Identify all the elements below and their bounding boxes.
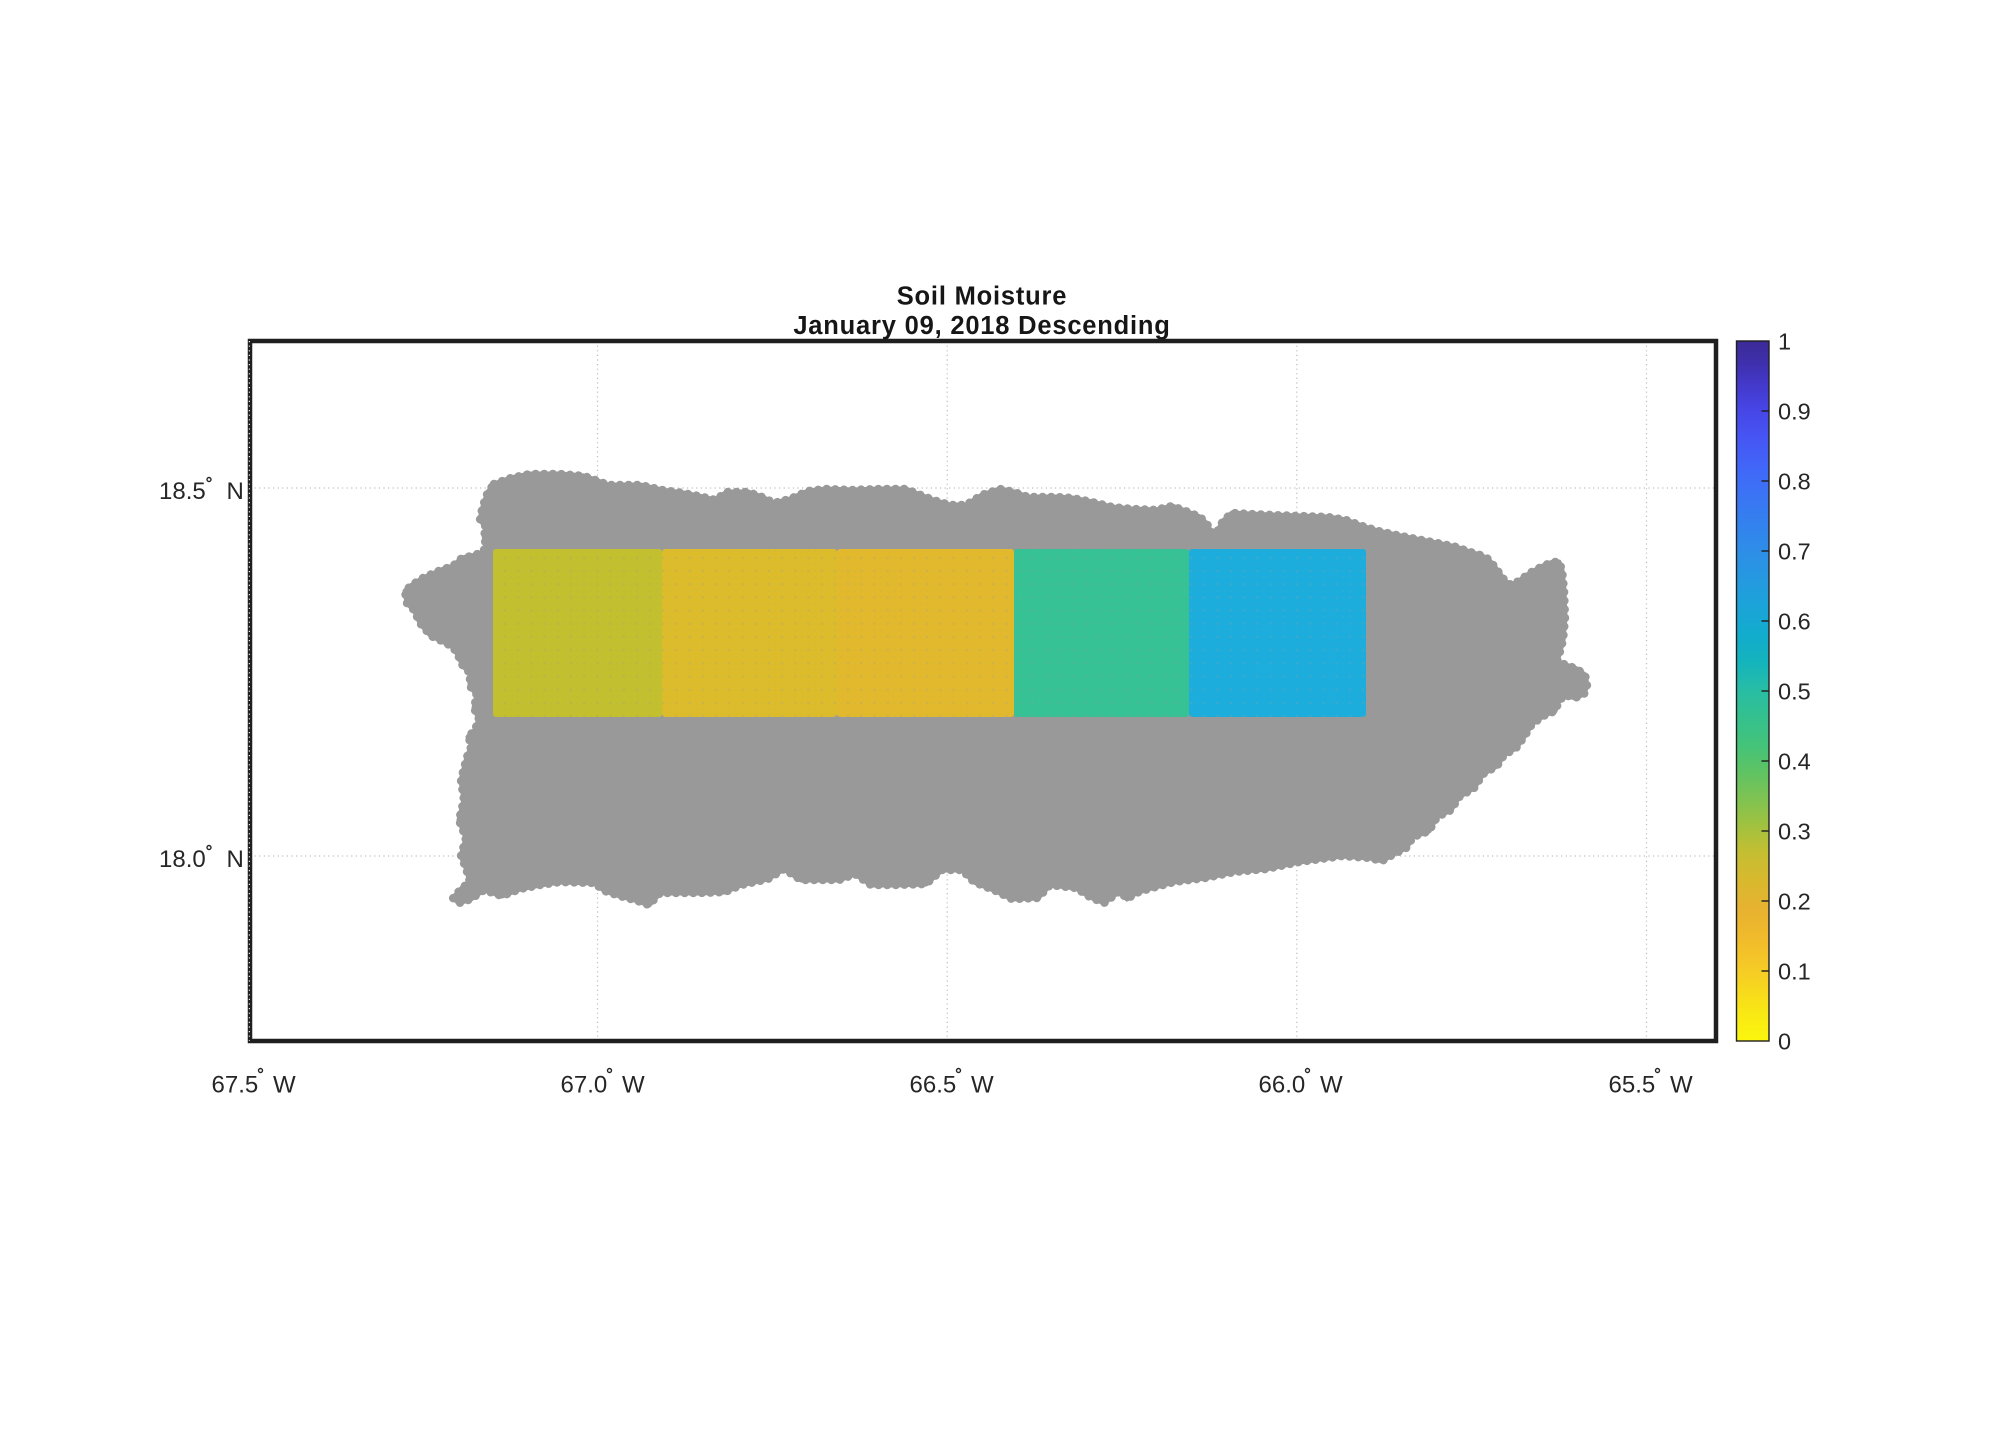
svg-text:W: W xyxy=(1670,1072,1693,1099)
svg-text:0.6: 0.6 xyxy=(1778,609,1811,635)
svg-text:W: W xyxy=(971,1072,994,1099)
svg-text:0.3: 0.3 xyxy=(1778,819,1811,845)
svg-text:0.2: 0.2 xyxy=(1778,889,1811,915)
svg-text:W: W xyxy=(622,1072,645,1099)
svg-text:0.1: 0.1 xyxy=(1778,959,1811,985)
svg-text:0.5: 0.5 xyxy=(1778,679,1811,705)
svg-text:18.5: 18.5 xyxy=(159,478,206,505)
svg-text:65.5: 65.5 xyxy=(1609,1072,1656,1099)
svg-text:0.9: 0.9 xyxy=(1778,399,1811,425)
svg-text:W: W xyxy=(273,1072,296,1099)
svg-text:0.7: 0.7 xyxy=(1778,539,1811,565)
svg-text:Soil Moisture: Soil Moisture xyxy=(897,283,1068,311)
svg-text:66.0: 66.0 xyxy=(1259,1072,1306,1099)
svg-text:N: N xyxy=(227,478,244,505)
svg-text:18.0: 18.0 xyxy=(159,846,206,873)
svg-text:0: 0 xyxy=(1778,1029,1791,1055)
svg-text:0.4: 0.4 xyxy=(1778,749,1811,775)
svg-text:January 09, 2018 Descending: January 09, 2018 Descending xyxy=(793,312,1170,340)
svg-text:67.5: 67.5 xyxy=(212,1072,259,1099)
svg-text:0.8: 0.8 xyxy=(1778,469,1811,495)
svg-text:67.0: 67.0 xyxy=(561,1072,608,1099)
svg-text:1: 1 xyxy=(1778,329,1791,355)
svg-text:66.5: 66.5 xyxy=(910,1072,957,1099)
svg-text:N: N xyxy=(227,846,244,873)
svg-text:W: W xyxy=(1320,1072,1343,1099)
